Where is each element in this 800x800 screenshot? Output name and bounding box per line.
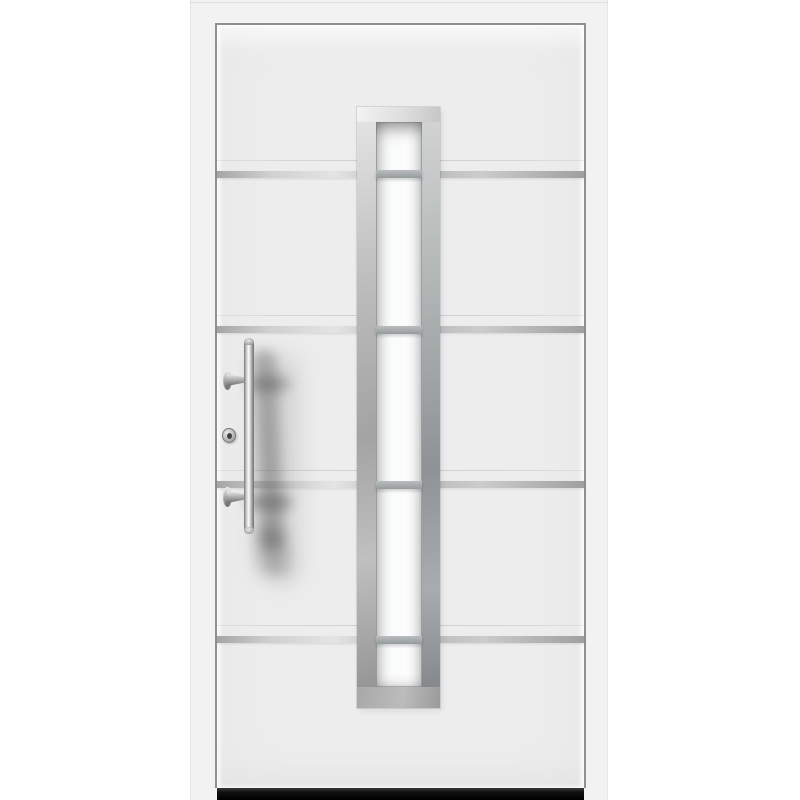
glass-crossbar	[376, 326, 422, 334]
glazing-frame-bottom-rail	[357, 687, 440, 708]
handle-shadow-foot	[254, 527, 290, 575]
product-photo-white-entry-door	[0, 0, 800, 800]
glazing-frame-top-rail	[357, 107, 440, 122]
cylinder-lock	[222, 428, 236, 443]
handle-shadow-top-bracket	[249, 377, 289, 391]
glass-pane	[376, 122, 422, 687]
glass-crossbar	[376, 170, 422, 178]
glazing-frame-right-rail	[422, 107, 440, 708]
glazing-frame-left-rail	[357, 107, 376, 708]
glass-crossbar	[376, 636, 422, 644]
glazing-frame	[357, 107, 440, 708]
threshold-sill	[217, 788, 584, 800]
frame-top-hairline	[190, 2, 608, 3]
glass-crossbar	[376, 481, 422, 489]
handle-bar	[244, 338, 254, 534]
